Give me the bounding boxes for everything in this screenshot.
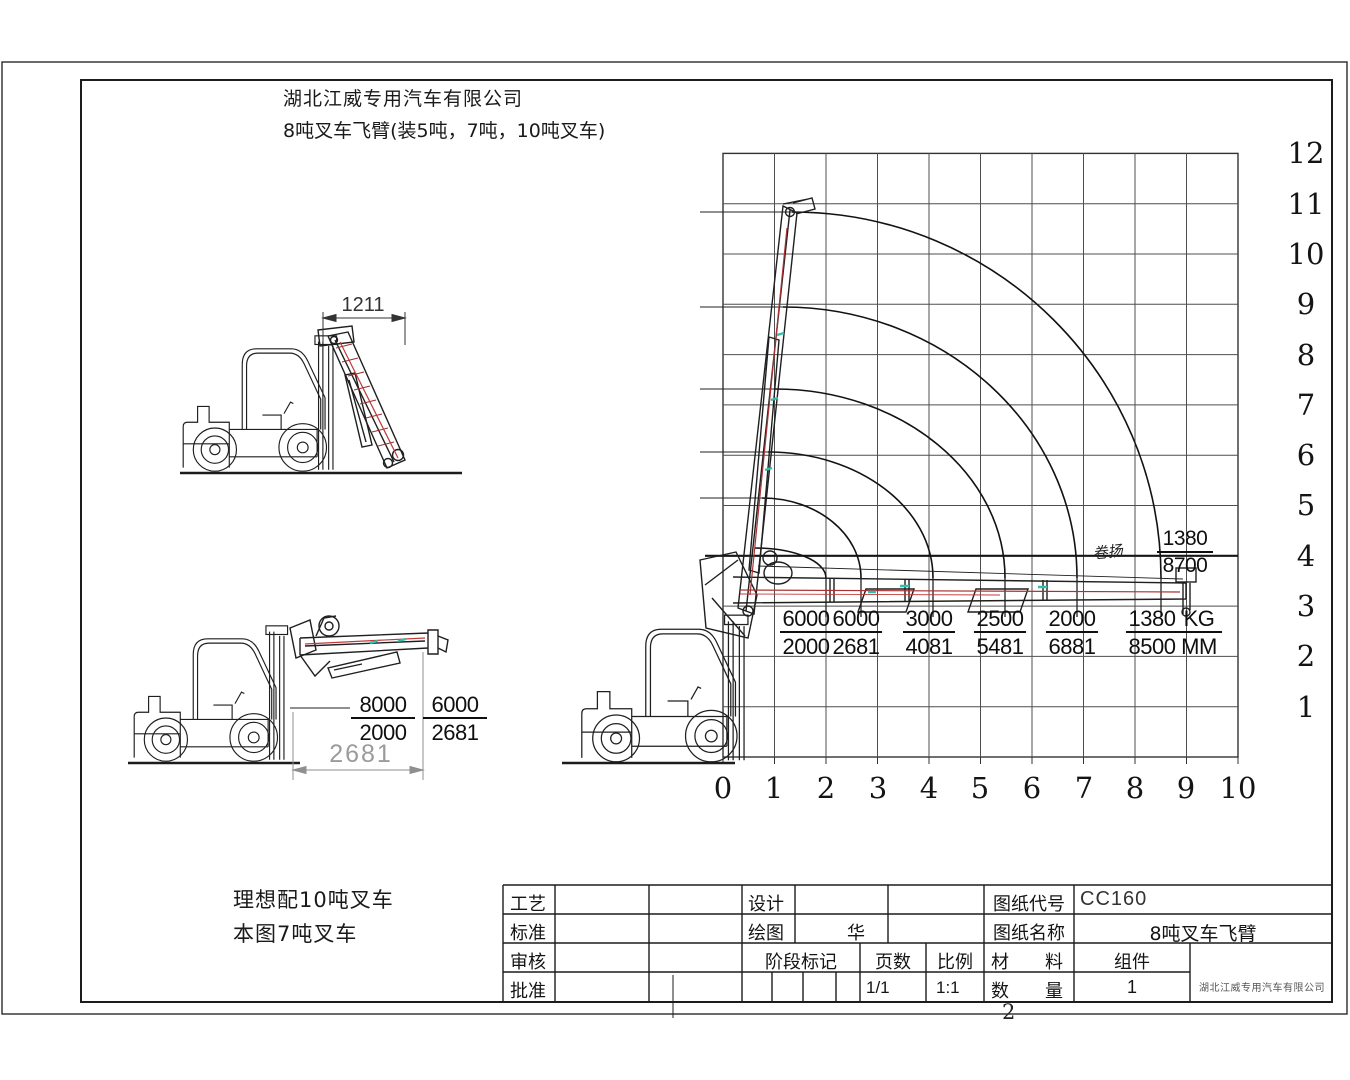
forklift-folded-view (180, 312, 462, 473)
scale-value: 1:1 (936, 978, 960, 998)
capacity-6-load: 1380 (1126, 607, 1178, 633)
page-number: 2 (1002, 1000, 1015, 1024)
side-rating-2-reach: 2681 (423, 719, 487, 744)
scale-label: 比例 (928, 948, 982, 974)
side-rating-1: 8000 2000 (351, 693, 415, 744)
y-tick-9: 9 (1282, 287, 1330, 321)
y-tick-12: 12 (1282, 136, 1330, 170)
side-rating-2: 6000 2681 (423, 693, 487, 744)
winch-load: 1380 (1157, 528, 1213, 553)
capacity-3-load: 3000 (903, 607, 955, 633)
units-reach: MM (1176, 633, 1222, 658)
draw-value: 华 (828, 919, 884, 945)
drawing-title: 8吨叉车飞臂(装5吨，7吨，10吨叉车) (283, 116, 605, 143)
jib-hatching (336, 342, 398, 458)
capacity-5-reach: 6881 (1046, 633, 1098, 658)
winch-rating: 1380 8700 (1157, 528, 1213, 577)
name-label: 图纸名称 (988, 919, 1070, 945)
drawing-sheet: 湖北江威专用汽车有限公司 8吨叉车飞臂(装5吨，7吨，10吨叉车) 理想配10吨… (0, 0, 1350, 1080)
capacity-col-1: 6000 2000 (780, 607, 832, 658)
code-value: CC160 (1080, 888, 1147, 911)
standard-label: 标准 (510, 919, 546, 945)
capacity-3-reach: 4081 (903, 633, 955, 658)
draw-label: 绘图 (748, 919, 784, 945)
company-stamp: 湖北江威专用汽车有限公司 (1194, 979, 1330, 994)
x-tick-1: 1 (754, 771, 794, 805)
capacity-col-5: 2000 6881 (1046, 607, 1098, 658)
side-rating-2-load: 6000 (423, 693, 487, 719)
boom-teal-markers (765, 333, 1047, 592)
side-rating-1-reach: 2000 (351, 719, 415, 744)
x-tick-8: 8 (1115, 771, 1155, 805)
capacity-1-load: 6000 (780, 607, 832, 633)
pages-label: 页数 (863, 948, 923, 974)
x-tick-9: 9 (1166, 771, 1206, 805)
units-load: KG (1176, 607, 1222, 633)
approve-label: 批准 (510, 977, 546, 1003)
company-name: 湖北江威专用汽车有限公司 (283, 84, 523, 111)
x-tick-4: 4 (909, 771, 949, 805)
capacity-6-reach: 8500 (1126, 633, 1178, 658)
x-tick-7: 7 (1064, 771, 1104, 805)
x-tick-2: 2 (806, 771, 846, 805)
y-tick-3: 3 (1282, 589, 1330, 623)
x-tick-3: 3 (858, 771, 898, 805)
name-value: 8吨叉车飞臂 (1103, 919, 1303, 946)
y-tick-2: 2 (1282, 639, 1330, 673)
winch-reach: 8700 (1157, 553, 1213, 577)
raised-boom (700, 198, 815, 638)
y-tick-11: 11 (1282, 187, 1330, 221)
note-ideal-forklift: 理想配10吨叉车 (233, 884, 394, 914)
capacity-4-reach: 5481 (974, 633, 1026, 658)
forklift-chart-view (562, 198, 1196, 763)
capacity-col-3: 3000 4081 (903, 607, 955, 658)
y-tick-8: 8 (1282, 338, 1330, 372)
x-tick-5: 5 (960, 771, 1000, 805)
capacity-4-load: 2500 (974, 607, 1026, 633)
y-tick-1: 1 (1282, 690, 1330, 724)
x-tick-6: 6 (1012, 771, 1052, 805)
x-tick-10: 10 (1218, 771, 1258, 805)
short-boom (290, 616, 448, 678)
code-label: 图纸代号 (988, 890, 1070, 916)
capacity-col-4: 2500 5481 (974, 607, 1026, 658)
capacity-2-load: 6000 (830, 607, 882, 633)
y-tick-5: 5 (1282, 488, 1330, 522)
units-column: KG MM (1176, 607, 1222, 658)
sheet-borders (2, 62, 1347, 1014)
capacity-col-6: 1380 8500 (1126, 607, 1178, 658)
design-label: 设计 (748, 890, 784, 916)
pages-value: 1/1 (866, 978, 890, 998)
winch-label: 卷扬 (1093, 539, 1125, 563)
x-tick-0: 0 (703, 771, 743, 805)
load-curves (755, 212, 1161, 578)
y-tick-4: 4 (1282, 539, 1330, 573)
cad-line-art (0, 0, 1350, 1080)
process-label: 工艺 (510, 890, 546, 916)
capacity-1-reach: 2000 (780, 633, 832, 658)
check-label: 审核 (510, 948, 546, 974)
dimension-1211-text: 1211 (328, 294, 398, 317)
y-tick-7: 7 (1282, 388, 1330, 422)
capacity-2-reach: 2681 (830, 633, 882, 658)
quantity-value: 1 (1078, 977, 1186, 998)
capacity-5-load: 2000 (1046, 607, 1098, 633)
y-tick-10: 10 (1282, 237, 1330, 271)
assembly-label: 组件 (1078, 948, 1186, 974)
capacity-col-2: 6000 2681 (830, 607, 882, 658)
stage-label: 阶段标记 (745, 948, 857, 974)
material-label: 材 料 (991, 948, 1063, 974)
y-tick-6: 6 (1282, 438, 1330, 472)
note-current-forklift: 本图7吨叉车 (233, 918, 357, 948)
side-rating-1-load: 8000 (351, 693, 415, 719)
